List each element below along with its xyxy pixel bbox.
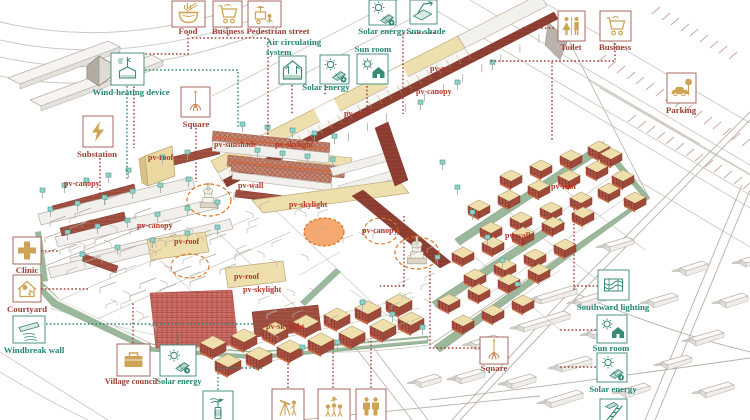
svg-text:Courtyard: Courtyard — [7, 304, 47, 314]
svg-text:pv-roof: pv-roof — [174, 237, 200, 246]
svg-text:Wind-heating device: Wind-heating device — [92, 87, 169, 97]
svg-text:Substation: Substation — [77, 149, 117, 159]
svg-text:Southward lighting: Southward lighting — [577, 302, 650, 312]
svg-text:pv-roof: pv-roof — [344, 109, 370, 118]
svg-text:Clinic: Clinic — [16, 265, 39, 275]
svg-text:Square: Square — [481, 363, 508, 373]
svg-text:Sun-shade: Sun-shade — [406, 26, 445, 36]
svg-text:Food: Food — [178, 26, 197, 36]
svg-text:pv-canopy: pv-canopy — [64, 179, 100, 188]
svg-text:pv-roof: pv-roof — [234, 272, 260, 281]
svg-text:pv-skylight: pv-skylight — [243, 285, 282, 294]
svg-text:pv-sunshade: pv-sunshade — [214, 140, 257, 149]
svg-text:Square: Square — [183, 119, 210, 129]
svg-text:Sun room: Sun room — [593, 343, 630, 353]
svg-text:Pedestrian street: Pedestrian street — [246, 26, 309, 36]
svg-text:pv-roof: pv-roof — [148, 153, 174, 162]
svg-text:Solar energy: Solar energy — [156, 377, 202, 386]
svg-text:Parking: Parking — [666, 105, 697, 115]
svg-text:Business: Business — [212, 26, 245, 36]
svg-text:Solar energy: Solar energy — [589, 384, 637, 394]
svg-text:Sun room: Sun room — [355, 44, 392, 54]
svg-text:Toilet: Toilet — [560, 42, 581, 52]
svg-text:system: system — [266, 47, 292, 57]
svg-text:pv-skylight: pv-skylight — [275, 140, 314, 149]
svg-text:pv-skylight: pv-skylight — [266, 322, 305, 331]
svg-text:pv-roof: pv-roof — [551, 182, 577, 191]
svg-text:pv-skylight: pv-skylight — [289, 200, 328, 209]
svg-text:pv-canopy: pv-canopy — [362, 226, 398, 235]
svg-text:pv-wall: pv-wall — [238, 181, 264, 190]
svg-text:Business: Business — [599, 42, 632, 52]
svg-text:Air circulating: Air circulating — [266, 37, 322, 47]
svg-text:pv-canopy: pv-canopy — [137, 221, 173, 230]
svg-text:pv-wall: pv-wall — [505, 231, 531, 240]
svg-text:Windbreak wall: Windbreak wall — [4, 345, 65, 355]
svg-text:pv-canopy: pv-canopy — [416, 87, 452, 96]
svg-text:Solar energy: Solar energy — [302, 82, 350, 92]
svg-text:Solar energy: Solar energy — [358, 26, 406, 36]
svg-text:Village council: Village council — [105, 377, 158, 386]
svg-text:pv-roof: pv-roof — [430, 64, 456, 73]
